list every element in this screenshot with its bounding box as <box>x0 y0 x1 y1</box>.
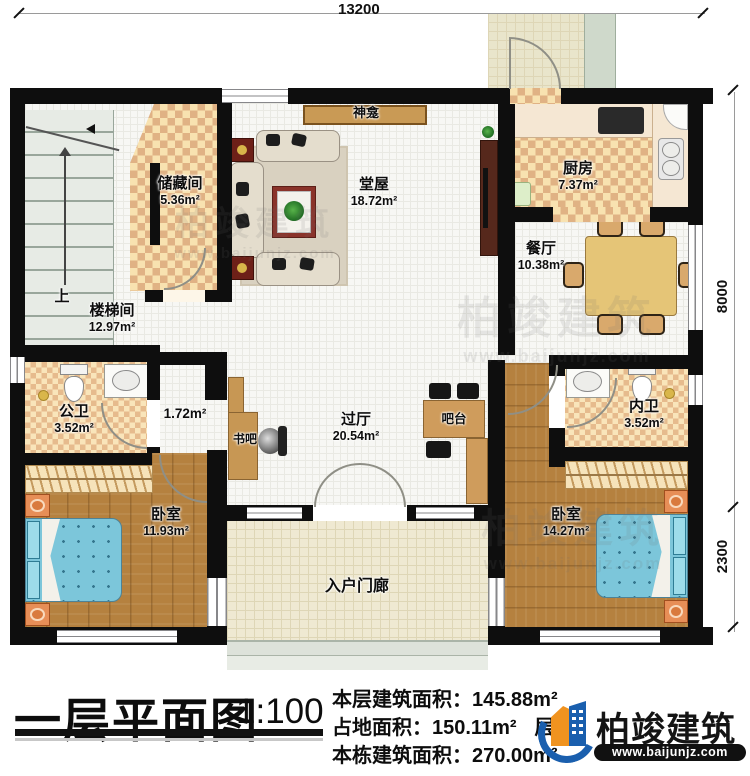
dimension-tick <box>727 621 738 632</box>
door-opening <box>510 88 561 104</box>
wall <box>288 88 510 104</box>
entry-step <box>227 655 488 670</box>
room-label-book-bar: 书吧 <box>233 433 257 446</box>
nightstand <box>664 600 688 623</box>
brand-website: www.baijunjz.com <box>594 744 746 761</box>
pillow <box>291 133 307 148</box>
stair-up-arrowhead <box>59 147 71 156</box>
dimension-tick <box>727 84 738 95</box>
room-label-bedroom-left: 卧室 11.93m² <box>143 507 189 538</box>
bar-stool <box>457 383 479 399</box>
room-label-stair-up: 上 <box>54 289 69 306</box>
window <box>247 507 302 519</box>
rear-porch-step <box>584 13 616 88</box>
door-opening <box>147 400 160 447</box>
window <box>416 507 474 519</box>
wardrobe <box>25 465 153 493</box>
window <box>207 578 227 626</box>
window <box>688 225 703 330</box>
sink-basin <box>112 370 140 391</box>
wall <box>549 447 703 461</box>
pillow <box>266 134 280 146</box>
wall <box>205 352 227 400</box>
headboard <box>673 517 686 555</box>
wall <box>10 345 160 362</box>
room-label-shrine: 神龛 <box>353 106 379 121</box>
room-label-bar-counter: 吧台 <box>441 412 466 426</box>
wardrobe <box>565 461 688 489</box>
dimension-line-right <box>734 92 735 632</box>
headboard <box>27 521 40 559</box>
headboard <box>673 557 686 595</box>
tv-screen <box>483 168 488 228</box>
floor-drain <box>664 388 675 399</box>
pillow <box>235 213 250 229</box>
title-underline <box>15 729 323 736</box>
window <box>10 357 25 383</box>
dimension-right-lower-label: 2300 <box>714 540 731 573</box>
nightstand <box>25 494 50 517</box>
wall <box>498 103 515 355</box>
room-label-stairwell: 楼梯间 12.97m² <box>89 303 136 334</box>
nightstand <box>25 603 50 626</box>
sofa <box>256 252 340 286</box>
bar-counter-return <box>466 438 488 504</box>
bar-stool <box>426 441 451 458</box>
room-label-ensuite-bath: 内卫 3.52m² <box>624 399 664 430</box>
wall <box>217 103 232 293</box>
dimension-tick <box>727 501 738 512</box>
room-label-storage: 储藏间 5.36m² <box>157 176 202 207</box>
plant <box>482 126 494 138</box>
desk-chair-back <box>278 426 287 456</box>
dimension-top-label: 13200 <box>338 1 380 18</box>
door-opening <box>163 290 205 302</box>
window <box>488 578 505 626</box>
room-label-hall: 堂屋 18.72m² <box>351 177 398 208</box>
dining-chair <box>563 262 584 288</box>
wall <box>10 453 152 465</box>
sink-basin <box>662 160 680 176</box>
pillow <box>272 258 286 270</box>
floor-plan-page: 13200 8000 2300 <box>0 0 750 776</box>
dining-chair <box>639 314 665 335</box>
window <box>540 630 660 643</box>
lamp <box>237 263 247 273</box>
window <box>222 89 288 103</box>
door-opening <box>553 207 650 222</box>
room-label-hallway: 过厅 20.54m² <box>333 412 380 443</box>
bar-stool <box>429 383 451 399</box>
pillow <box>236 182 249 196</box>
window <box>57 630 177 643</box>
room-label-public-bath: 公卫 3.52m² <box>54 404 94 435</box>
title-block: 一层平面图 1:100 本层建筑面积：145.88m² 占地面积：150.11m… <box>0 678 750 776</box>
room-label-bedroom-right: 卧室 14.27m² <box>543 507 590 538</box>
stair-path-line <box>64 155 66 285</box>
window <box>688 375 703 405</box>
lamp <box>237 145 247 155</box>
room-label-entry-porch: 入户门廊 <box>325 578 389 596</box>
plant <box>284 201 304 221</box>
dining-table <box>585 236 677 316</box>
stove <box>598 107 644 134</box>
dimension-right-upper-label: 8000 <box>714 280 731 313</box>
room-label-closet: 1.72m² <box>164 406 207 421</box>
sink-basin <box>662 142 680 158</box>
title-underline-shadow <box>15 738 323 741</box>
toilet-tank <box>60 364 88 375</box>
sofa <box>230 162 264 258</box>
room-label-dining: 餐厅 10.38m² <box>518 241 565 272</box>
floor-drain <box>38 390 49 401</box>
nightstand <box>664 490 688 513</box>
drawing-scale: 1:100 <box>236 692 324 732</box>
wall <box>10 88 222 104</box>
room-label-kitchen: 厨房 7.37m² <box>558 161 598 192</box>
stair-direction-arrow <box>86 124 95 134</box>
pillow <box>299 257 315 271</box>
door-opening <box>313 505 407 521</box>
dining-chair <box>597 314 623 335</box>
wall <box>549 355 702 369</box>
headboard <box>27 561 40 599</box>
brand-logo-icon <box>538 698 594 756</box>
